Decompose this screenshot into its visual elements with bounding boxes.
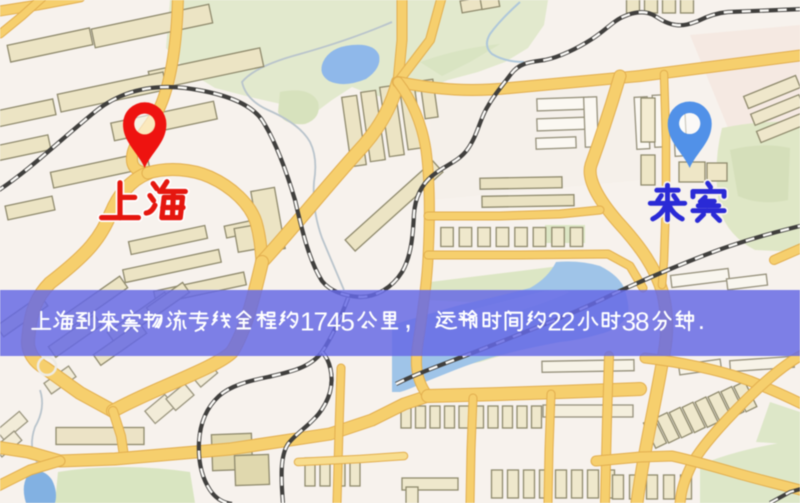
svg-text:1745: 1745 <box>300 307 354 337</box>
svg-text:22: 22 <box>547 307 574 337</box>
svg-text:38: 38 <box>622 307 649 337</box>
svg-text:,: , <box>404 302 412 335</box>
svg-text:.: . <box>698 305 705 335</box>
